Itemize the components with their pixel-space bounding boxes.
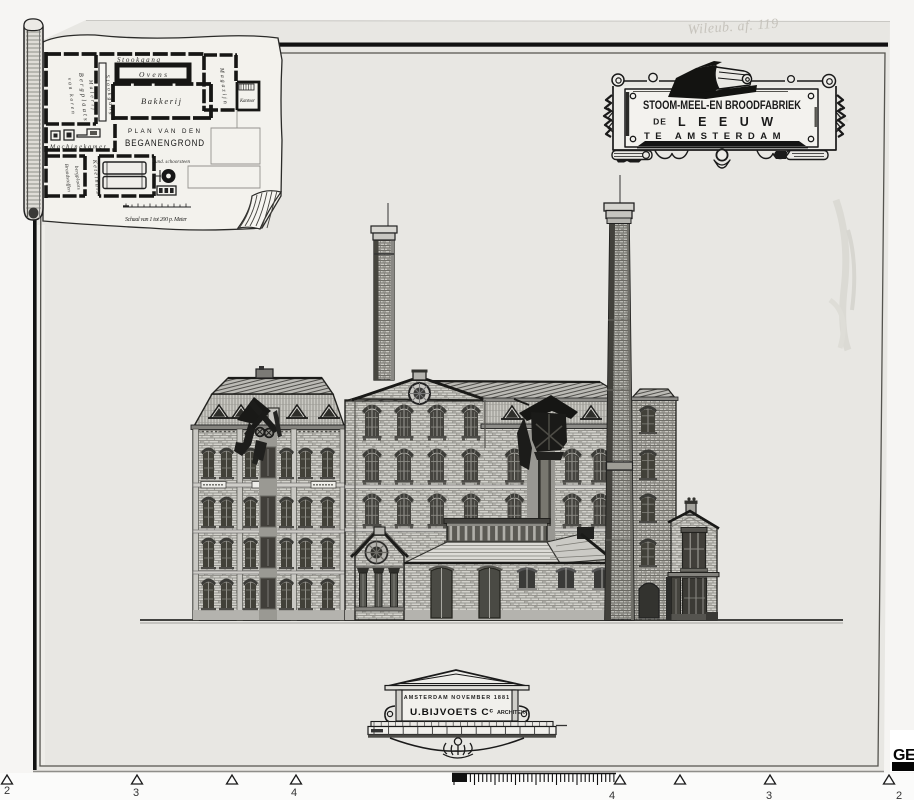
svg-text:TE AMSTERDAM: TE AMSTERDAM (644, 131, 784, 142)
svg-text:LEEUW: LEEUW (678, 115, 782, 129)
svg-text:U.BIJVOETS Cᶜ: U.BIJVOETS Cᶜ (410, 707, 494, 718)
svg-text:4: 4 (609, 790, 615, 800)
svg-text:Fund. schoorsteen: Fund. schoorsteen (151, 160, 191, 165)
svg-text:3: 3 (133, 787, 139, 799)
svg-text:GE: GE (893, 747, 914, 764)
svg-text:3: 3 (766, 790, 772, 800)
svg-text:PLAN VAN DEN: PLAN VAN DEN (128, 128, 202, 135)
svg-text:ARCHITEKT: ARCHITEKT (497, 710, 529, 716)
svg-text:AMSTERDAM NOVEMBER 1881: AMSTERDAM NOVEMBER 1881 (404, 695, 510, 701)
svg-text:Bakkerij: Bakkerij (141, 96, 182, 106)
svg-text:DE: DE (653, 117, 667, 127)
svg-text:4: 4 (291, 787, 297, 799)
svg-text:2: 2 (4, 785, 10, 797)
svg-text:2: 2 (896, 790, 902, 800)
svg-text:Schaal van 1 tot 200 p. Meter: Schaal van 1 tot 200 p. Meter (125, 217, 188, 223)
svg-text:Kantoor: Kantoor (239, 99, 255, 104)
svg-text:STOOM-MEEL-EN BROODFABRIEK: STOOM-MEEL-EN BROODFABRIEK (643, 100, 802, 112)
svg-text:BEGANENGROND: BEGANENGROND (125, 138, 205, 148)
